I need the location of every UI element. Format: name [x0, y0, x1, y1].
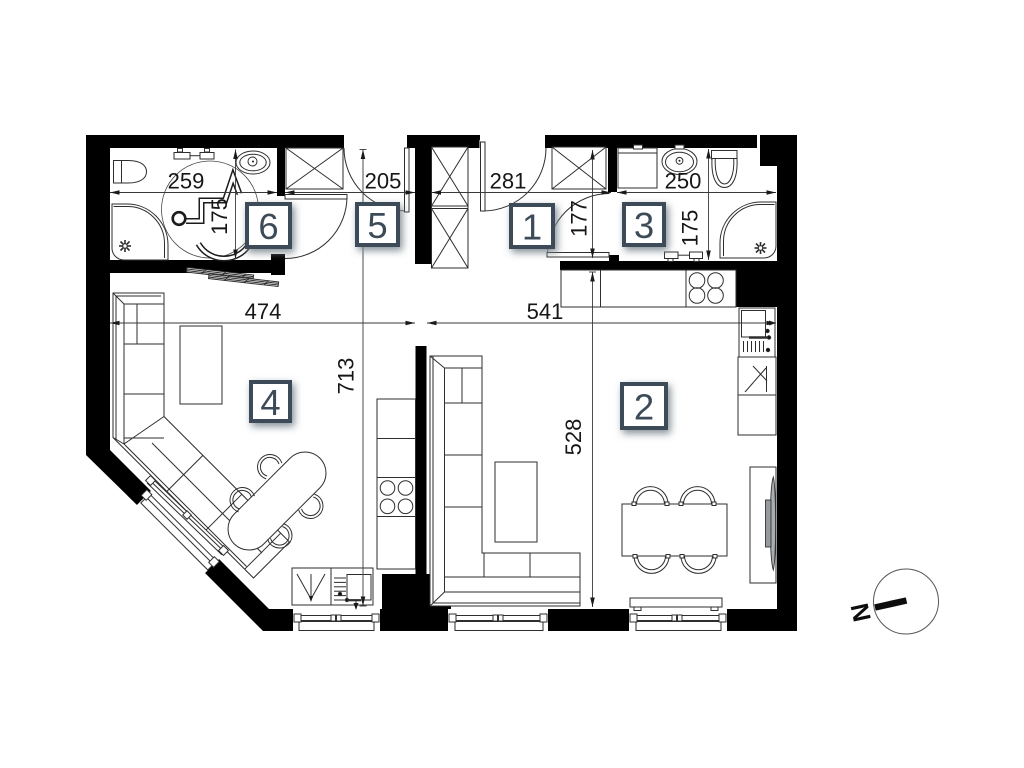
svg-text:5: 5 — [367, 205, 387, 246]
svg-text:4: 4 — [260, 382, 280, 423]
svg-text:205: 205 — [365, 169, 402, 194]
svg-text:175: 175 — [678, 210, 703, 247]
svg-text:474: 474 — [245, 299, 282, 324]
svg-text:2: 2 — [634, 386, 654, 427]
svg-text:250: 250 — [665, 169, 702, 194]
svg-text:177: 177 — [567, 200, 592, 237]
svg-text:281: 281 — [490, 169, 527, 194]
svg-text:528: 528 — [561, 419, 586, 456]
svg-text:1: 1 — [522, 206, 542, 247]
svg-text:175: 175 — [207, 198, 232, 235]
svg-text:3: 3 — [634, 205, 654, 246]
svg-text:541: 541 — [527, 299, 564, 324]
svg-text:259: 259 — [168, 169, 205, 194]
svg-text:6: 6 — [258, 206, 278, 247]
svg-text:713: 713 — [334, 358, 359, 395]
